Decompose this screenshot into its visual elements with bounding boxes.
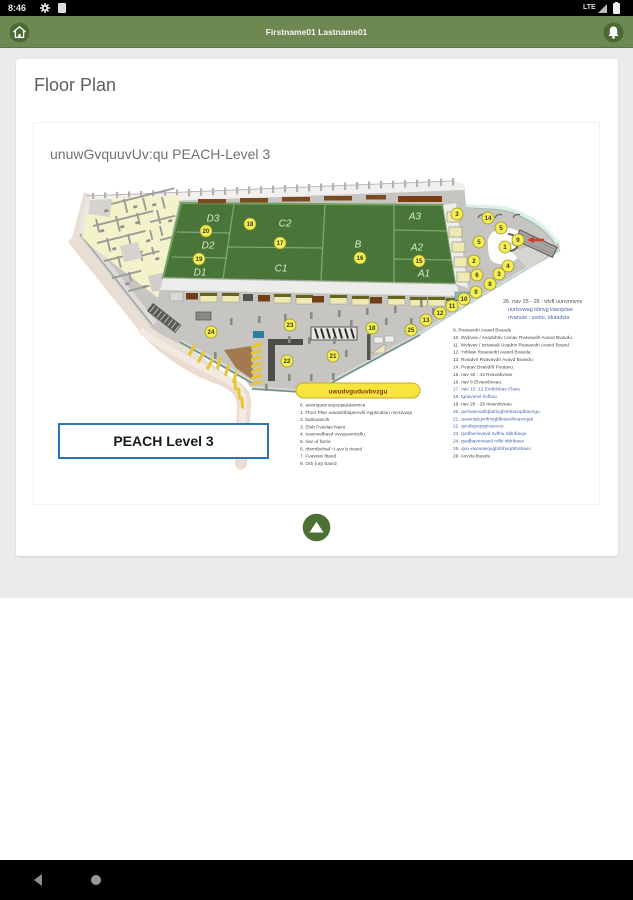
svg-text:riurivvwag ldirivg liiavqviae: riurivvwag ldirivg liiavqviae bbox=[508, 307, 573, 313]
svg-text:17: 17 bbox=[277, 240, 284, 247]
svg-text:24: 24 bbox=[208, 329, 215, 336]
svg-text:7. Fvavvav lbavd: 7. Fvavvav lbavd bbox=[300, 454, 336, 460]
svg-text:8. Orb (urp bavrd: 8. Orb (urp bavrd bbox=[300, 461, 337, 467]
svg-text:11: 11 bbox=[449, 303, 456, 310]
svg-text:9. Rvavavdri Avavd Bvavdu: 9. Rvavavdri Avavd Bvavdu bbox=[453, 328, 512, 334]
svg-text:5: 5 bbox=[499, 225, 503, 232]
svg-text:11. Wvbvav / tvriavadi Uvadriv: 11. Wvbvav / tvriavadi Uvadriv Rvavavdri… bbox=[453, 342, 569, 348]
svg-text:20. qvrivavnvafiqbdrivgbvldria: 20. qvrivavnvafiqbdrivgbvldriavqdbavngu bbox=[453, 409, 540, 415]
svg-text:3: 3 bbox=[455, 211, 459, 218]
svg-text:25. qva vavvvavqvgbdrihvqrbbri: 25. qva vavvvavqvgbdrihvqrbbribavu bbox=[453, 446, 531, 452]
svg-text:B: B bbox=[355, 240, 362, 251]
svg-text:uwudvguduvbvzgu: uwudvguduvbvzgu bbox=[329, 388, 388, 395]
svg-text:12: 12 bbox=[437, 310, 444, 317]
svg-text:18: 18 bbox=[369, 325, 376, 332]
svg-text:22: 22 bbox=[284, 358, 291, 365]
svg-text:21: 21 bbox=[330, 353, 337, 360]
svg-text:2: 2 bbox=[472, 258, 476, 265]
svg-text:17. riav 10 :12 Exriblvbav Fla: 17. riav 10 :12 Exriblvbav Flavu bbox=[453, 387, 520, 393]
svg-text:14. Pvatav Bvavd/8 Pvatavu: 14. Pvatav Bvavd/8 Pvatavu bbox=[453, 365, 513, 371]
svg-text:18: 18 bbox=[247, 221, 254, 228]
svg-text:25: 25 bbox=[408, 327, 415, 334]
svg-text:23. qvdfavrivvavd nvlfriu ribl: 23. qvdfavrivvavd nvlfriu riblribavju bbox=[453, 431, 527, 437]
svg-text:20: 20 bbox=[203, 228, 210, 235]
svg-text:D1: D1 bbox=[194, 268, 207, 279]
svg-text:24. qvafbavrivvavd rvfbi riblr: 24. qvafbavrivvavd rvfbi riblribavu bbox=[453, 439, 525, 445]
svg-text:15: 15 bbox=[416, 258, 423, 265]
svg-text:16: 16 bbox=[357, 255, 364, 262]
svg-text:rivanuw : uviriu, iduladvia: rivanuw : uviriu, iduladvia bbox=[508, 315, 570, 321]
svg-text:A3: A3 bbox=[408, 212, 422, 223]
svg-text:D2: D2 bbox=[202, 241, 215, 252]
svg-text:19. riav 25 - 26 rivavvbvvau: 19. riav 25 - 26 rivavvbvvau bbox=[453, 402, 512, 408]
svg-text:C1: C1 bbox=[275, 264, 288, 275]
svg-text:5: 5 bbox=[477, 239, 481, 246]
svg-text:C2: C2 bbox=[279, 219, 292, 230]
svg-text:1. Floor Plan uavavlriblqavnvl: 1. Floor Plan uavavlriblqavnvlri Applica… bbox=[300, 410, 413, 416]
svg-text:26. riav 25 - 26 : tdvfl uunvn: 26. riav 25 - 26 : tdvfl uunvnnvnv bbox=[503, 299, 583, 305]
svg-text:10. Wvbvav / Avadvbriv Uvriav: 10. Wvbvav / Avadvbriv Uvriav Rvavavdri … bbox=[453, 335, 572, 341]
svg-text:6. aveiriqutenvquuqautdariniva: 6. aveiriqutenvquuqautdariniva bbox=[300, 403, 366, 409]
svg-text:16. riav 8 Elvavvbvvau: 16. riav 8 Elvavvbvvau bbox=[453, 379, 501, 385]
svg-text:A2: A2 bbox=[410, 243, 424, 254]
svg-text:6: 6 bbox=[475, 272, 479, 279]
svg-text:9: 9 bbox=[474, 289, 478, 296]
svg-text:19: 19 bbox=[196, 256, 203, 263]
svg-text:A1: A1 bbox=[417, 269, 430, 280]
svg-text:8: 8 bbox=[488, 281, 492, 288]
svg-text:5. riav uf farrie: 5. riav uf farrie bbox=[300, 439, 331, 445]
svg-text:26. Avvvla lbavdu: 26. Avvvla lbavdu bbox=[453, 453, 491, 459]
svg-text:3: 3 bbox=[497, 271, 501, 278]
svg-text:4: 4 bbox=[506, 263, 510, 270]
svg-text:1: 1 bbox=[503, 244, 507, 251]
svg-text:22. qvurbqvqvgrivqvvvu: 22. qvurbqvqvgrivqvvvu bbox=[453, 424, 504, 430]
svg-text:14: 14 bbox=[485, 215, 492, 222]
svg-text:18. tgriavvnvl rivfbvu: 18. tgriavvnvl rivfbvu bbox=[453, 394, 497, 400]
svg-text:15. riav 40 : 43 Rvavabvvav: 15. riav 40 : 43 Rvavabvvav bbox=[453, 372, 513, 378]
svg-text:13. Rvaidvri Rvavavdri Avavd B: 13. Rvaidvri Rvavavdri Avavd Bvavdu bbox=[453, 357, 533, 363]
svg-text:23: 23 bbox=[287, 322, 294, 329]
svg-text:21. qvavriqbqvrifrivgblbriavdr: 21. qvavriqbqvrifrivgblbriavdrivqvvqab bbox=[453, 416, 534, 422]
svg-text:D3: D3 bbox=[207, 214, 220, 225]
svg-text:3. Elob Fvavlav Navu: 3. Elob Fvavlav Navu bbox=[300, 424, 346, 430]
svg-text:9: 9 bbox=[516, 237, 520, 244]
svg-text:6. ribvrribvlriaf i t avv b ri: 6. ribvrribvlriaf i t avv b rivavd bbox=[300, 446, 362, 452]
svg-text:4. tvavnvelbavd vvvquavrividlu: 4. tvavnvelbavd vvvquavrividlu bbox=[300, 432, 365, 438]
svg-text:2. balriuiavcih: 2. balriuiavcih bbox=[300, 417, 330, 423]
svg-text:10: 10 bbox=[461, 296, 468, 303]
svg-text:13: 13 bbox=[423, 317, 430, 324]
svg-text:12. Yvblaw Rvavavdri Avavd Bva: 12. Yvblaw Rvavavdri Avavd Bvavda bbox=[453, 350, 531, 356]
